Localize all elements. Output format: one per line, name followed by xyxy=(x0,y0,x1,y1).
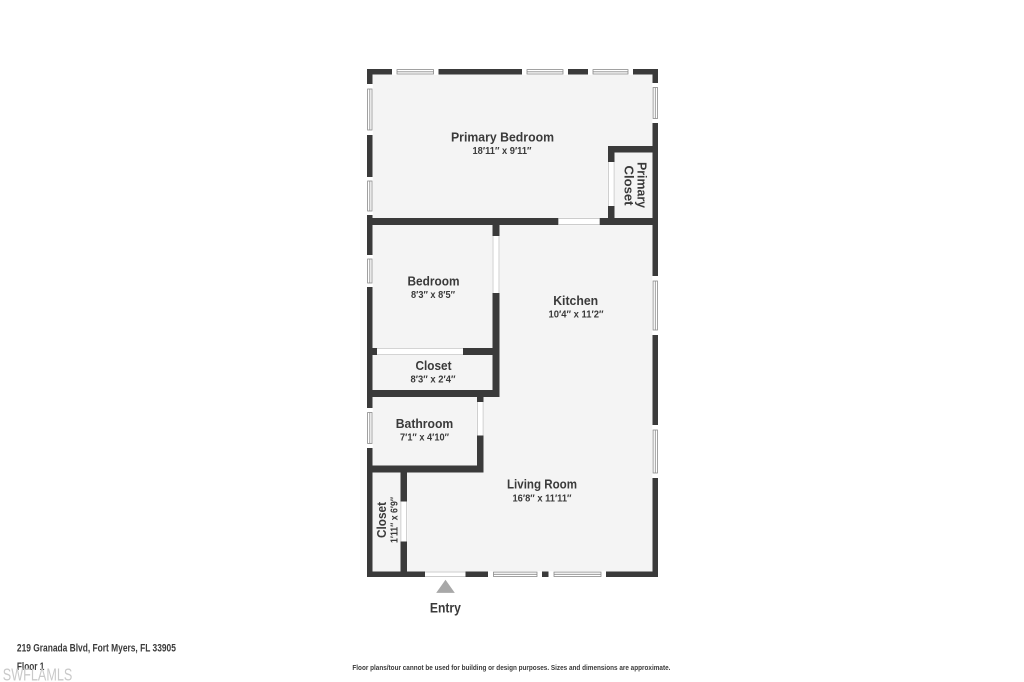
svg-text:Kitchen: Kitchen xyxy=(553,294,598,308)
svg-text:Primary Bedroom: Primary Bedroom xyxy=(451,130,554,144)
svg-text:219 Granada Blvd, Fort Myers,: 219 Granada Blvd, Fort Myers, FL 33905 xyxy=(17,642,176,654)
svg-text:Primary: Primary xyxy=(635,162,649,208)
svg-text:Closet: Closet xyxy=(622,166,636,207)
svg-text:Floor plans/tour cannot be use: Floor plans/tour cannot be used for buil… xyxy=(352,663,670,672)
svg-text:SWFLAMLS: SWFLAMLS xyxy=(3,665,73,682)
svg-text:Closet: Closet xyxy=(416,359,453,373)
svg-text:16′8″ x 11′11″: 16′8″ x 11′11″ xyxy=(513,493,572,504)
svg-text:18′11″ x 9′11″: 18′11″ x 9′11″ xyxy=(473,146,532,157)
svg-text:10′4″ x 11′2″: 10′4″ x 11′2″ xyxy=(549,310,604,321)
svg-text:8′3″ x 2′4″: 8′3″ x 2′4″ xyxy=(411,375,456,386)
svg-text:Living Room: Living Room xyxy=(507,477,577,491)
svg-text:Bedroom: Bedroom xyxy=(408,274,460,288)
svg-text:1′11″ x 6′9″: 1′11″ x 6′9″ xyxy=(390,497,401,543)
svg-text:8′3″ x 8′5″: 8′3″ x 8′5″ xyxy=(411,290,455,301)
svg-text:Entry: Entry xyxy=(430,600,461,615)
svg-text:7′1″ x 4′10″: 7′1″ x 4′10″ xyxy=(400,433,449,444)
svg-text:Bathroom: Bathroom xyxy=(396,417,454,431)
svg-text:Closet: Closet xyxy=(375,501,389,538)
